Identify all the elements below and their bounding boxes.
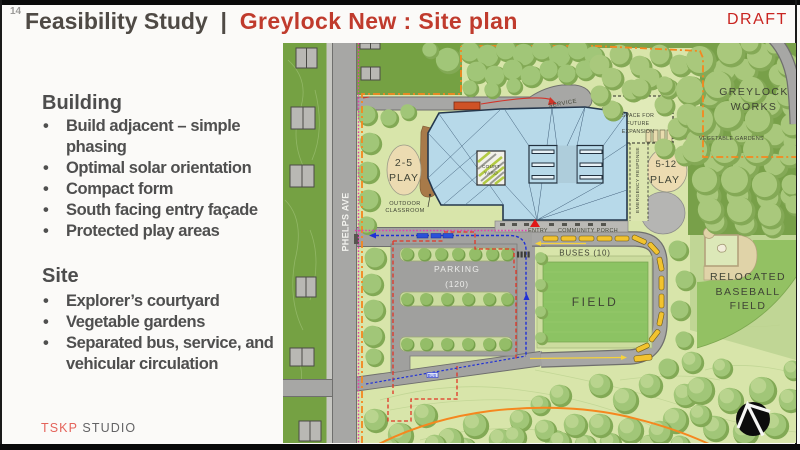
svg-text:CLASSROOM: CLASSROOM: [385, 208, 424, 214]
svg-text:YARD: YARD: [484, 171, 498, 176]
svg-text:WORKS: WORKS: [731, 101, 778, 113]
svg-text:FUTURE: FUTURE: [627, 121, 650, 127]
svg-text:FIELD: FIELD: [572, 295, 619, 309]
svg-text:5-12: 5-12: [655, 159, 676, 170]
svg-text:PLAY: PLAY: [389, 172, 419, 184]
svg-text:RELOCATED: RELOCATED: [710, 271, 786, 283]
svg-text:SPACE FOR: SPACE FOR: [622, 113, 654, 119]
svg-text:BUS: BUS: [428, 373, 437, 378]
svg-text:(120): (120): [445, 279, 469, 289]
svg-text:ENTRY: ENTRY: [528, 228, 548, 234]
svg-text:EMERGENCY RESPONSE: EMERGENCY RESPONSE: [635, 147, 641, 213]
svg-text:COURT: COURT: [482, 164, 500, 169]
svg-text:PARKING: PARKING: [434, 264, 480, 274]
svg-text:OUTDOOR: OUTDOOR: [389, 201, 420, 207]
svg-text:2-5: 2-5: [395, 157, 413, 169]
svg-text:GREYLOCK: GREYLOCK: [719, 86, 789, 98]
svg-text:COMMUNITY PORCH: COMMUNITY PORCH: [558, 228, 618, 234]
svg-text:BASEBALL: BASEBALL: [716, 286, 781, 298]
svg-text:EXPANSION: EXPANSION: [622, 129, 655, 135]
svg-text:PLAY: PLAY: [650, 174, 680, 186]
svg-text:BUSES (10): BUSES (10): [559, 249, 611, 258]
svg-text:VEGETABLE GARDENS: VEGETABLE GARDENS: [699, 136, 764, 142]
svg-text:PHELPS AVE: PHELPS AVE: [341, 192, 351, 251]
svg-text:FIELD: FIELD: [730, 300, 767, 312]
